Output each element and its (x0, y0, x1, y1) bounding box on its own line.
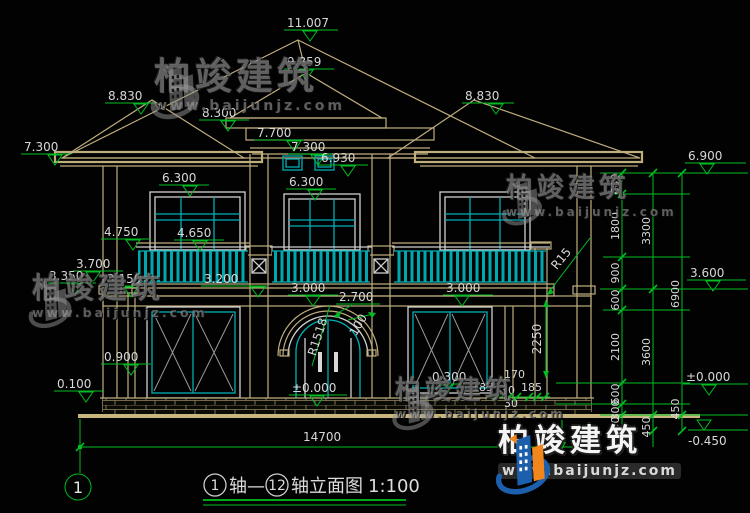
svg-text:2.700: 2.700 (339, 290, 373, 304)
svg-text:0.900: 0.900 (104, 350, 138, 364)
svg-text:2250: 2250 (530, 324, 544, 355)
svg-text:7.300: 7.300 (24, 140, 58, 154)
elevation-drawing: 11.007 9.859 8.830 8.830 8.300 7.700 7.3… (0, 0, 750, 513)
svg-text:0.300: 0.300 (432, 370, 466, 384)
svg-text:R15: R15 (548, 245, 574, 272)
svg-text:600: 600 (609, 174, 622, 195)
svg-text:3.600: 3.600 (690, 266, 724, 280)
svg-text:1:100: 1:100 (368, 476, 420, 497)
svg-text:1800: 1800 (609, 212, 622, 240)
svg-text:900: 900 (609, 263, 622, 284)
svg-text:6.930: 6.930 (321, 151, 355, 165)
svg-text:185: 185 (472, 381, 493, 394)
svg-text:±0.000: ±0.000 (292, 381, 336, 395)
svg-text:11.007: 11.007 (287, 16, 329, 30)
window-height-dim: 2250 (530, 300, 549, 378)
right-level-labels: 6.900 3.600 ±0.000 -0.450 (683, 149, 748, 448)
svg-text:0.100: 0.100 (57, 377, 91, 391)
svg-text:9.859: 9.859 (287, 55, 321, 69)
svg-text:12: 12 (268, 478, 286, 494)
svg-text:3.000: 3.000 (446, 281, 480, 295)
beam-end-left (252, 259, 266, 273)
cad-elevation-sheet: 11.007 9.859 8.830 8.830 8.300 7.700 7.3… (0, 0, 750, 513)
svg-text:6900: 6900 (669, 280, 682, 308)
svg-text:6.300: 6.300 (162, 171, 196, 185)
svg-text:4.650: 4.650 (177, 226, 211, 240)
svg-text:170: 170 (504, 368, 525, 381)
svg-text:3300: 3300 (640, 217, 653, 245)
svg-text:轴—: 轴— (229, 476, 265, 497)
svg-text:-0.450: -0.450 (688, 434, 727, 448)
overall-width-dim: 14700 (76, 419, 598, 473)
svg-text:8.300: 8.300 (202, 106, 236, 120)
right-wing-roof (388, 100, 640, 158)
svg-text:450: 450 (640, 417, 653, 438)
svg-text:30: 30 (501, 384, 515, 397)
svg-text:3.150: 3.150 (107, 272, 141, 286)
svg-text:±0.000: ±0.000 (686, 370, 730, 384)
svg-text:3.200: 3.200 (204, 272, 238, 286)
axis-bubble: 1 (65, 474, 91, 500)
svg-text:450: 450 (609, 417, 622, 438)
drawing-title: 1 轴— 12 轴立面图 1:100 (203, 474, 420, 505)
svg-text:450: 450 (669, 399, 682, 420)
svg-text:轴立面图: 轴立面图 (291, 476, 363, 497)
svg-text:3.350: 3.350 (49, 269, 83, 283)
svg-text:7.700: 7.700 (257, 126, 291, 140)
svg-text:1: 1 (211, 478, 220, 494)
door-handle-right (334, 352, 338, 372)
svg-text:6.900: 6.900 (688, 149, 722, 163)
svg-text:1: 1 (73, 478, 83, 497)
beam-end-right (374, 259, 388, 273)
svg-text:600: 600 (609, 290, 622, 311)
window-2f-center (284, 194, 360, 250)
downspout (125, 288, 138, 400)
svg-text:14700: 14700 (303, 430, 341, 444)
plinth-brick-band (100, 398, 594, 415)
arch-radius-leader: R1518 100 (305, 305, 376, 366)
svg-text:3.000: 3.000 (291, 281, 325, 295)
svg-text:6.300: 6.300 (289, 175, 323, 189)
ground-leader-arrow (558, 420, 566, 450)
svg-text:2100: 2100 (609, 333, 622, 361)
svg-text:3600: 3600 (640, 338, 653, 366)
svg-text:8.830: 8.830 (465, 89, 499, 103)
window-1f-left (147, 307, 240, 398)
svg-text:R1518: R1518 (305, 316, 330, 357)
svg-text:185: 185 (521, 381, 542, 394)
svg-text:8.830: 8.830 (108, 89, 142, 103)
center-dormer-roof (226, 73, 386, 128)
svg-text:4.750: 4.750 (104, 225, 138, 239)
window-2f-right (440, 192, 530, 250)
